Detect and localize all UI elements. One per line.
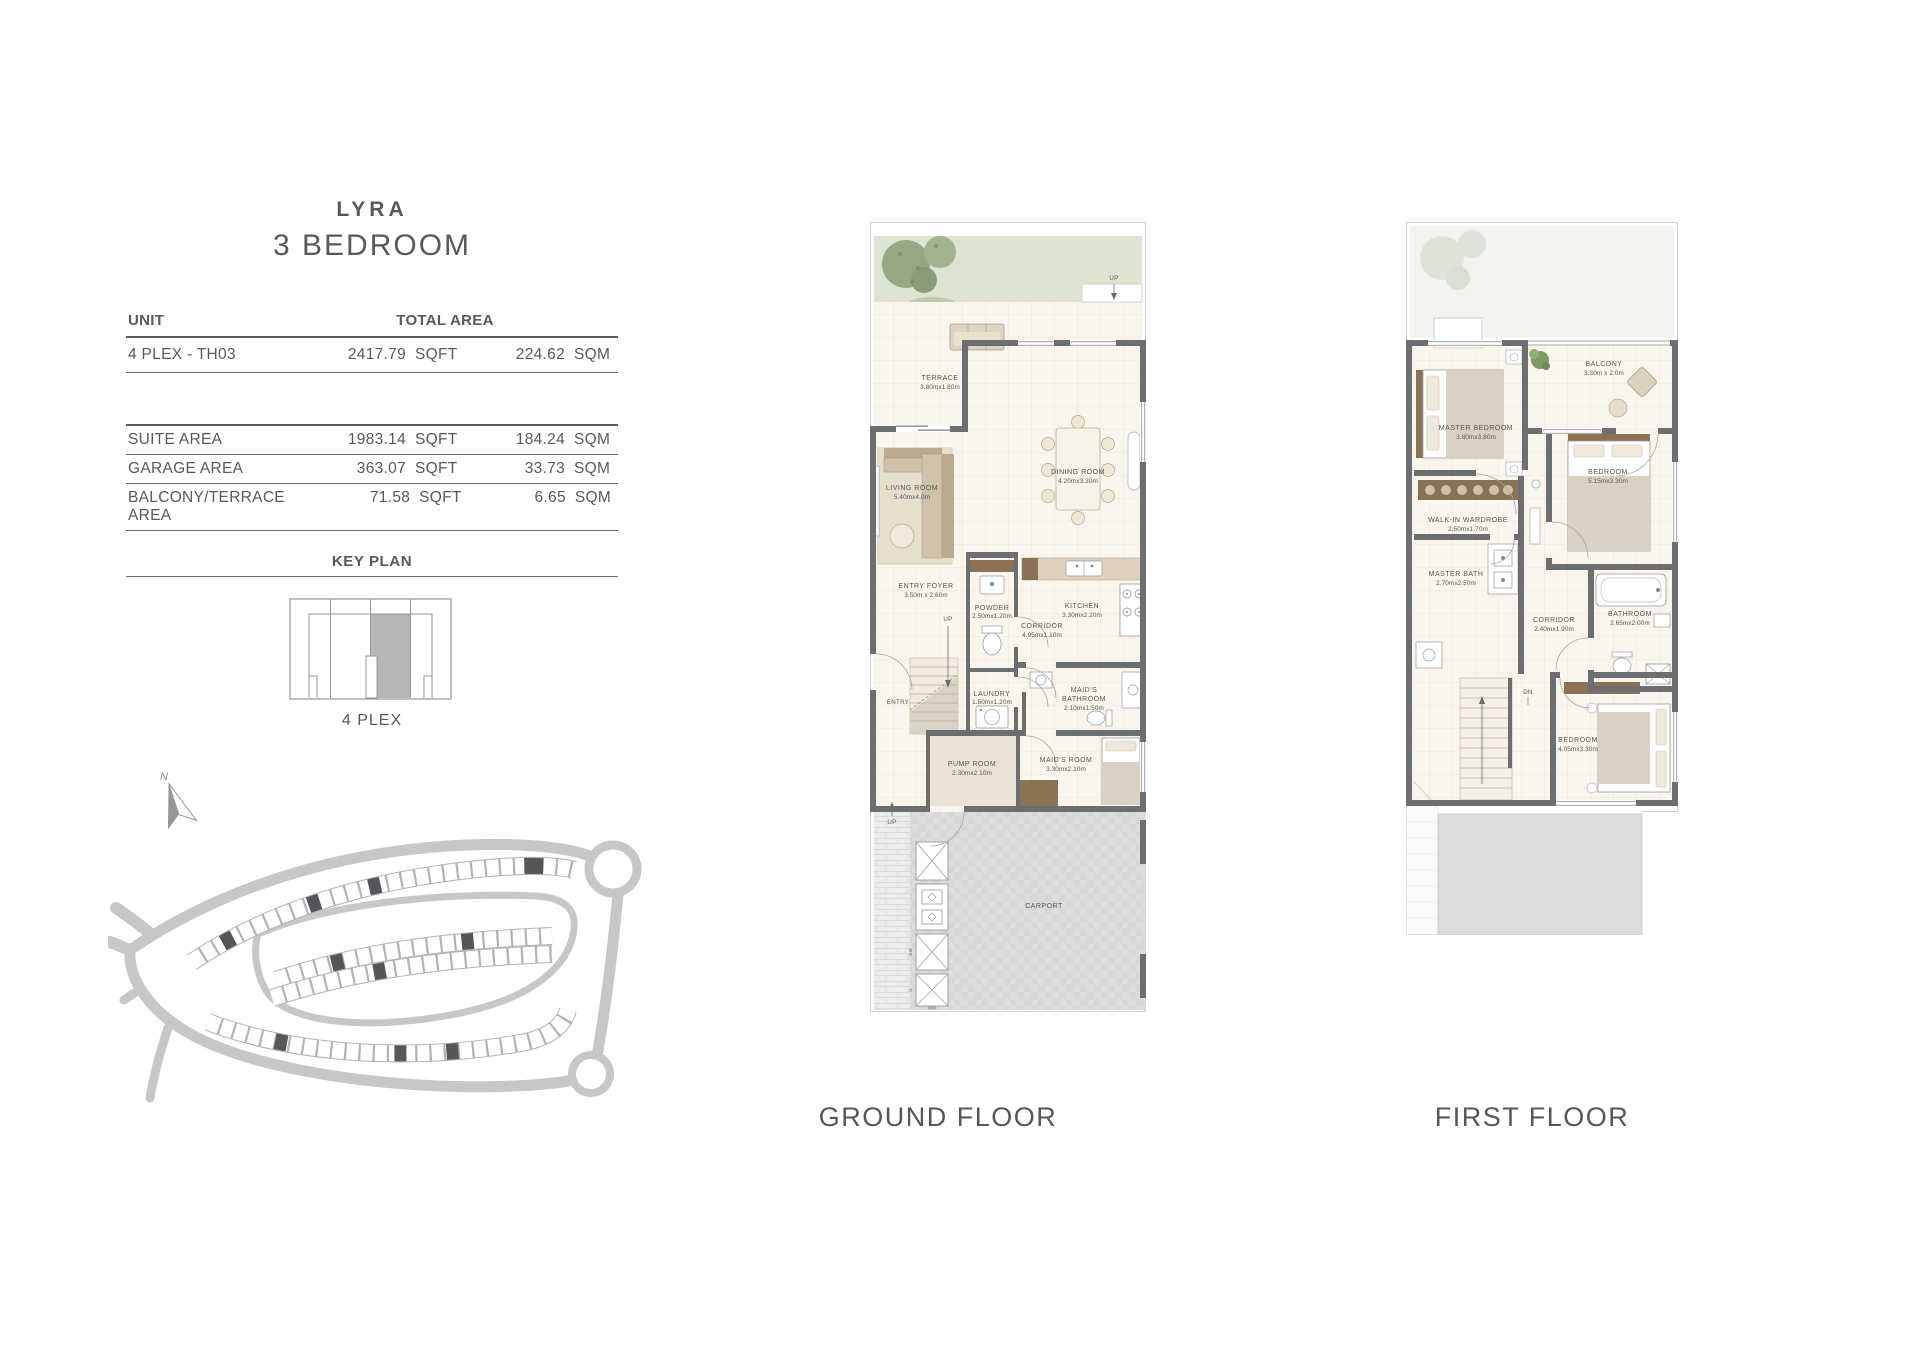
unit-label: 4 PLEX - TH03	[128, 346, 278, 364]
balcony-label: BALCONY	[1586, 361, 1623, 368]
ground-floor-caption: GROUND FLOOR	[773, 1102, 1103, 1133]
area-table-header: UNIT TOTAL AREA	[126, 306, 618, 338]
unit-sqft: 2417.79	[278, 346, 406, 364]
dining-room-dims: 4.20mx3.30m	[1058, 478, 1098, 485]
table-row: SUITE AREA 1983.14 SQFT 184.24 SQM	[126, 426, 618, 455]
entry-label: ENTRY	[887, 699, 909, 706]
unit-type-subtitle: 3 BEDROOM	[126, 229, 618, 263]
bathroom-dims: 2.65mx2.00m	[1610, 620, 1650, 627]
master-bath-dims: 2.70mx2.50m	[1436, 580, 1476, 587]
first-floor-plan: BALCONY 3.30m x 2.0m MASTER BEDROOM 3.80…	[1406, 222, 1678, 935]
key-plan-caption: 4 PLEX	[126, 712, 618, 730]
terrace-label: TERRACE	[922, 375, 959, 382]
area-detail-block: SUITE AREA 1983.14 SQFT 184.24 SQM GARAG…	[126, 424, 618, 531]
col-unit: UNIT	[128, 312, 274, 329]
powder-label: POWDER	[975, 605, 1010, 612]
ff-left-strip	[1407, 806, 1439, 935]
entry-foyer-label: ENTRY FOYER	[898, 583, 953, 590]
terrace-bench	[950, 324, 1004, 350]
up-carport-label: UP	[887, 819, 896, 826]
table-row-unit: 4 PLEX - TH03 2417.79 SQFT 224.62 SQM	[126, 338, 618, 373]
unit-sqm-unit: SQM	[565, 346, 616, 364]
pump-room-dims: 2.30mx2.10m	[952, 770, 992, 777]
master-bedroom-label: MASTER BEDROOM	[1439, 425, 1513, 432]
first-floor-caption: FIRST FLOOR	[1367, 1102, 1697, 1133]
project-title: LYRA	[126, 198, 618, 222]
ground-floor-plan: UP TERRACE 3.80mx1.80m LIVING ROOM 5.40m…	[870, 222, 1146, 1012]
maids-bath-label1: MAID'S	[1071, 687, 1098, 694]
key-plan-title: KEY PLAN	[126, 548, 618, 577]
bedroom-right-furniture	[1568, 434, 1650, 551]
site-map-roundabout-bottom	[572, 1055, 610, 1093]
balcony-dims: 3.30m x 2.0m	[1584, 370, 1624, 377]
table-gap	[126, 373, 618, 424]
dining-room-label: DINING ROOM	[1051, 469, 1105, 476]
corridor-dims: 4.95mx1.10m	[1022, 632, 1062, 639]
unit-sqm: 224.62	[461, 346, 565, 364]
laundry-dims: 1.50mx1.20m	[972, 699, 1012, 706]
kitchen-dims: 3.30mx2.20m	[1062, 612, 1102, 619]
maids-room-dims: 3.30mx2.10m	[1046, 766, 1086, 773]
ff-carport-roof	[1438, 814, 1642, 935]
carport-utility-boxes	[916, 842, 948, 1006]
site-map-roundabout-top	[589, 845, 637, 893]
title-block: LYRA 3 BEDROOM	[126, 198, 618, 263]
up-stairs-label: UP	[943, 616, 952, 623]
entry-foyer-dims: 3.50m x 2.60m	[904, 592, 948, 599]
living-room-label: LIVING ROOM	[886, 485, 938, 492]
laundry-fixtures	[976, 706, 1008, 728]
wardrobe-dims: 2.50mx1.70m	[1448, 526, 1488, 533]
wardrobe-label: WALK-IN WARDROBE	[1428, 517, 1508, 524]
wardrobe-closet	[1418, 480, 1518, 500]
bedroom-right-dims: 5.15mx3.30m	[1588, 478, 1628, 485]
gf-terrace-floor	[874, 302, 1142, 432]
bedroom-bottom-dims: 4.05mx3.30m	[1558, 746, 1598, 753]
up-terrace-label: UP	[1109, 275, 1118, 282]
gf-driveway	[874, 812, 910, 1010]
bedroom-bottom-label: BEDROOM	[1558, 737, 1598, 744]
utility-em-label: EM	[908, 948, 913, 955]
utility-g-label: G	[908, 988, 913, 992]
maids-room-label: MAID'S ROOM	[1040, 757, 1093, 764]
bathroom-label: BATHROOM	[1608, 611, 1652, 618]
carport-label: CARPORT	[1025, 903, 1063, 910]
master-bath-label: MASTER BATH	[1429, 571, 1484, 578]
laundry-label: LAUNDRY	[974, 691, 1011, 698]
col-total-area: TOTAL AREA	[274, 312, 616, 329]
site-map	[108, 812, 673, 1112]
master-bedroom-dims: 3.80mx3.80m	[1456, 434, 1496, 441]
area-table: UNIT TOTAL AREA 4 PLEX - TH03 2417.79 SQ…	[126, 306, 618, 577]
kitchen-label: KITCHEN	[1065, 603, 1099, 610]
dn-label: DN	[1523, 689, 1533, 696]
terrace-dims: 3.80mx1.80m	[920, 384, 960, 391]
maids-room-step	[1018, 780, 1058, 806]
unit-sqft-unit: SQFT	[406, 346, 461, 364]
ff-corridor-dims: 2.40mx1.90m	[1534, 626, 1574, 633]
maids-bath-dims: 2.10mx1.50m	[1064, 705, 1104, 712]
utility-wm-label: WM	[928, 1006, 937, 1011]
compass-n-label: N	[160, 771, 168, 783]
key-plan-figure	[289, 598, 452, 700]
living-room-furniture	[872, 448, 954, 564]
floorplan-sheet: LYRA 3 BEDROOM UNIT TOTAL AREA 4 PLEX - …	[0, 0, 1920, 1358]
ff-roof-gap	[1438, 806, 1642, 814]
entry-stairs	[910, 658, 958, 734]
bedroom-right-label: BEDROOM	[1588, 469, 1628, 476]
table-row: BALCONY/TERRACE AREA 71.58 SQFT 6.65 SQM	[126, 484, 618, 531]
maids-bath-label2: BATHROOM	[1062, 696, 1106, 703]
corridor-label: CORRIDOR	[1021, 623, 1063, 630]
ff-corridor-label: CORRIDOR	[1533, 617, 1575, 624]
table-row: GARAGE AREA 363.07 SQFT 33.73 SQM	[126, 455, 618, 484]
living-room-dims: 5.40mx4.0m	[894, 494, 930, 501]
pump-room-label: PUMP ROOM	[948, 761, 996, 768]
ff-stairs	[1460, 678, 1512, 800]
powder-dims: 2.50mx1.20m	[972, 613, 1012, 620]
keyplan-notch	[366, 656, 377, 698]
